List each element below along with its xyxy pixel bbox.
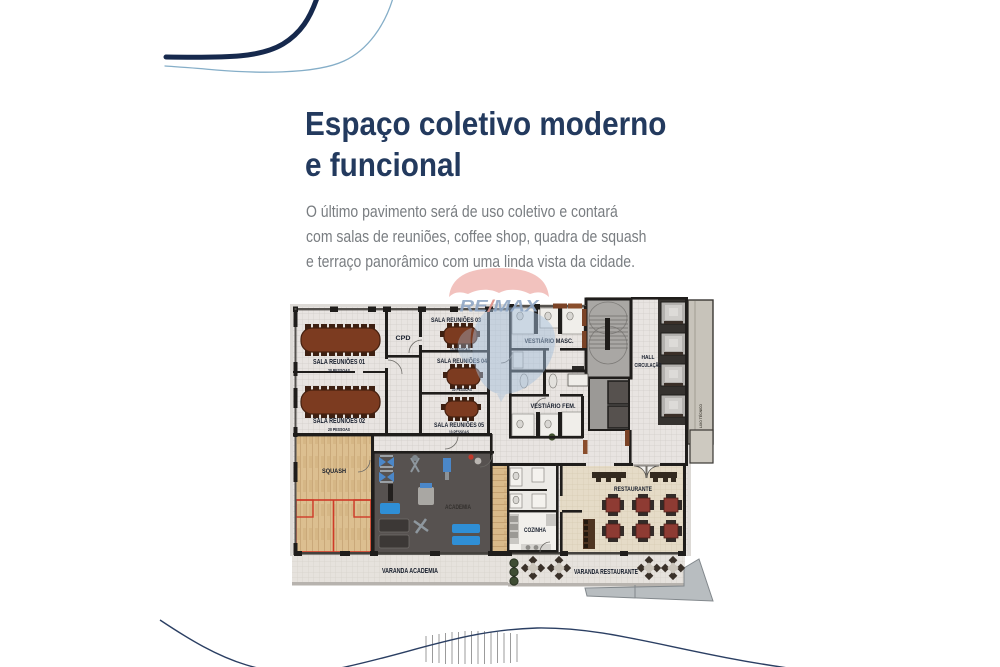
svg-text:SALA REUNIÕES 05: SALA REUNIÕES 05 xyxy=(434,420,484,429)
svg-text:HALL: HALL xyxy=(642,355,655,361)
svg-text:20 PESSOAS: 20 PESSOAS xyxy=(328,427,350,432)
svg-text:VARANDA RESTAURANTE: VARANDA RESTAURANTE xyxy=(574,569,638,576)
svg-text:10 PESSOAS: 10 PESSOAS xyxy=(449,430,469,435)
svg-text:ACADEMIA: ACADEMIA xyxy=(445,504,471,511)
svg-text:RESTAURANTE: RESTAURANTE xyxy=(614,486,652,493)
svg-text:SALA REUNIÕES 01: SALA REUNIÕES 01 xyxy=(313,357,365,366)
svg-text:RE/MAX: RE/MAX xyxy=(460,298,540,316)
svg-text:LIXO TÉCNICO: LIXO TÉCNICO xyxy=(698,404,703,428)
svg-text:20 PESSOAS: 20 PESSOAS xyxy=(328,368,350,373)
svg-text:VARANDA ACADEMIA: VARANDA ACADEMIA xyxy=(382,568,438,575)
svg-text:10 PESSOAS: 10 PESSOAS xyxy=(452,387,472,392)
svg-text:COZINHA: COZINHA xyxy=(524,528,547,534)
svg-text:SALA REUNIÕES 02: SALA REUNIÕES 02 xyxy=(313,416,365,425)
svg-text:CPD: CPD xyxy=(396,335,411,342)
svg-text:SALA REUNIÕES 03: SALA REUNIÕES 03 xyxy=(431,315,481,324)
svg-text:VESTIÁRIO FEM.: VESTIÁRIO FEM. xyxy=(531,401,576,410)
svg-text:SQUASH: SQUASH xyxy=(322,468,346,475)
svg-text:CIRCULAÇÃO: CIRCULAÇÃO xyxy=(635,362,662,369)
